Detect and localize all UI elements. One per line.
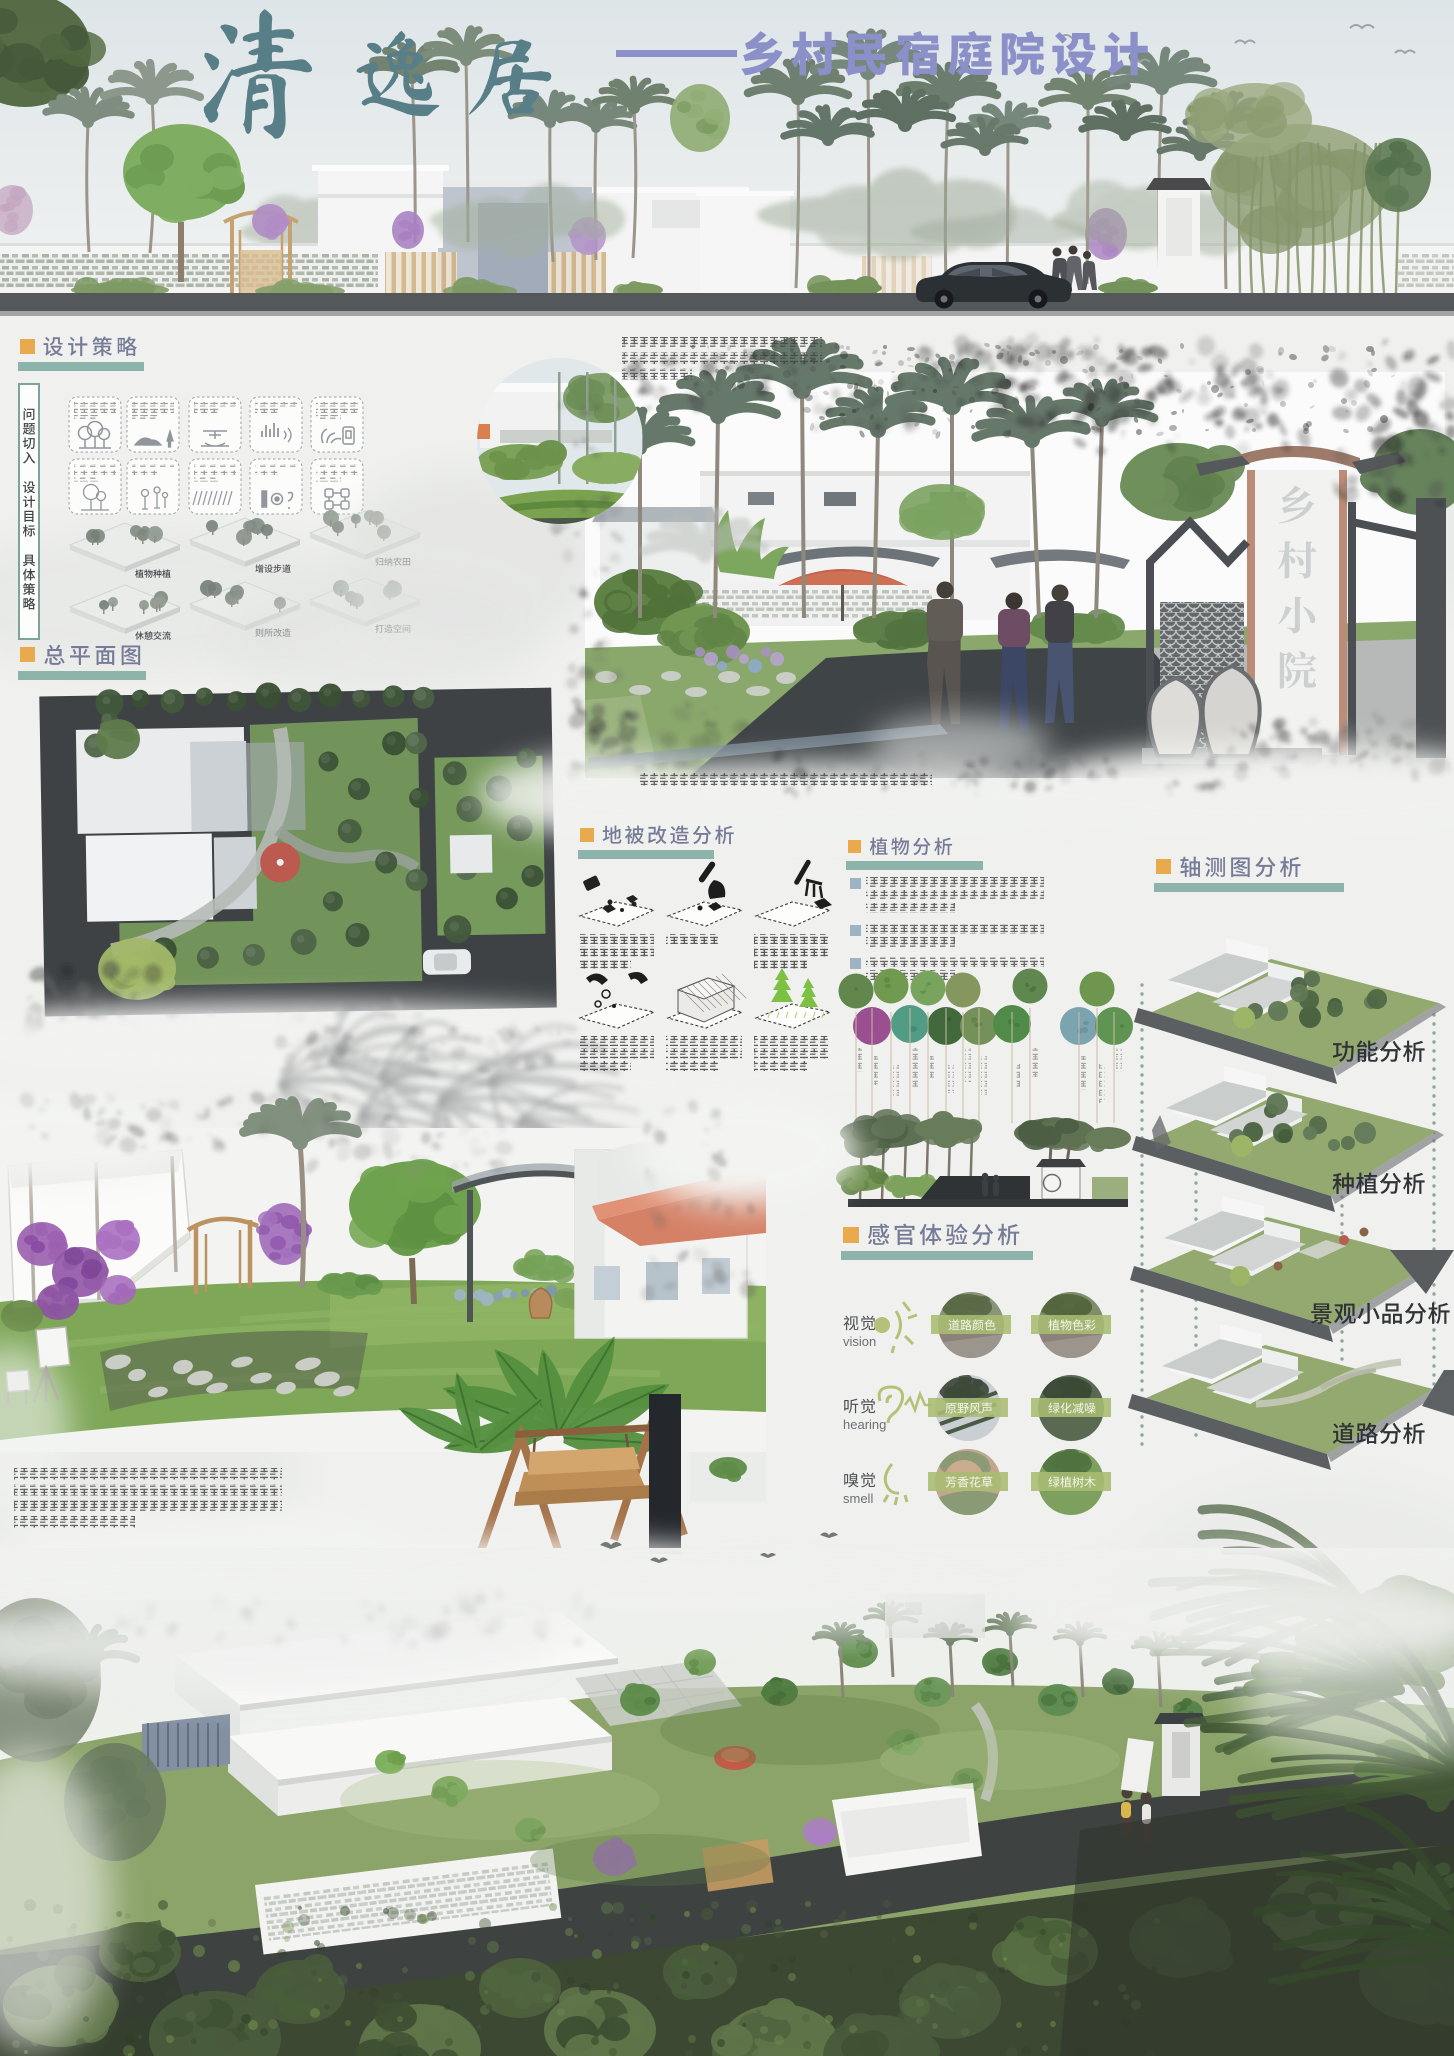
svg-text:hearing: hearing bbox=[843, 1417, 886, 1432]
svg-text:vision: vision bbox=[843, 1334, 876, 1349]
svg-text:smell: smell bbox=[843, 1491, 873, 1506]
